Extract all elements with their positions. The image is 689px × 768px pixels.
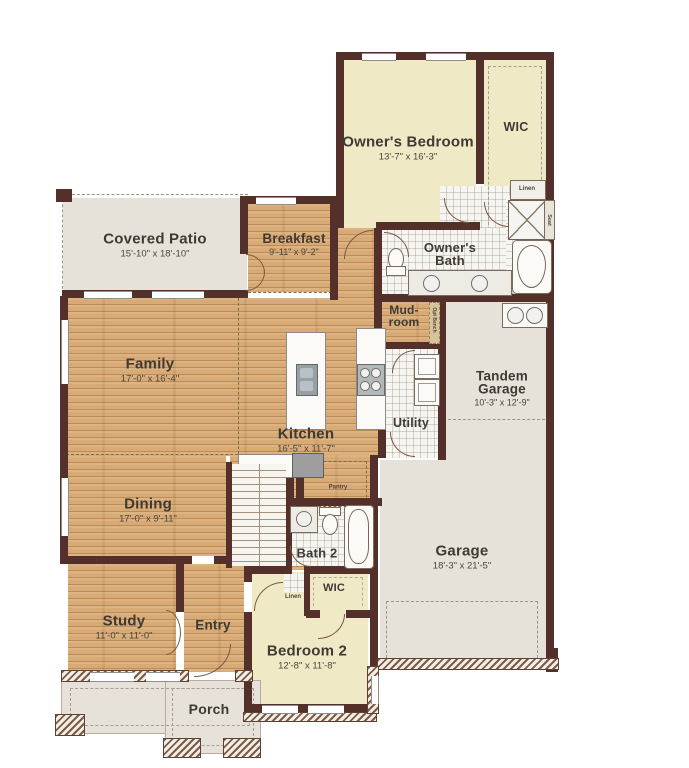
door-arc bbox=[166, 632, 181, 655]
window bbox=[362, 53, 396, 61]
washer bbox=[414, 354, 440, 379]
wall bbox=[62, 556, 192, 564]
room-label-garage: Garage 18'-3" x 21'-5" bbox=[433, 543, 491, 572]
exterior-wall-hatch bbox=[378, 659, 558, 669]
window bbox=[146, 672, 180, 682]
room-label-family: Family 17'-0" x 16'-4" bbox=[121, 356, 179, 385]
window bbox=[90, 672, 134, 682]
vanity-sink bbox=[290, 506, 318, 533]
room-label-bedroom2: Bedroom 2 12'-8" x 11'-8" bbox=[267, 643, 347, 672]
toilet bbox=[322, 514, 338, 535]
door-arc bbox=[166, 610, 181, 633]
wall bbox=[346, 610, 372, 618]
wall bbox=[476, 52, 484, 184]
exterior-wall-hatch bbox=[244, 713, 376, 721]
wall bbox=[330, 196, 338, 300]
room-label-owners-bedroom: Owner's Bedroom 13'-7" x 16'-3" bbox=[342, 134, 474, 163]
room-label-bath2: Bath 2 bbox=[297, 546, 338, 561]
window bbox=[61, 478, 69, 536]
dryer bbox=[414, 379, 440, 406]
tandem-bay-dashed bbox=[448, 419, 545, 420]
wall bbox=[304, 566, 310, 616]
wall bbox=[240, 196, 248, 254]
utility-sink bbox=[502, 303, 548, 328]
patio-edge-dashed bbox=[62, 194, 248, 195]
window bbox=[308, 705, 344, 714]
room-label-linen-owner: Linen bbox=[519, 186, 535, 192]
wall bbox=[176, 562, 184, 612]
bathtub bbox=[512, 240, 552, 294]
room-label-porch: Porch bbox=[189, 701, 230, 717]
room-label-entry: Entry bbox=[195, 618, 231, 633]
ceiling-break-dashed bbox=[248, 292, 332, 293]
ceiling-break-dashed bbox=[238, 298, 239, 454]
exterior-wall-hatch bbox=[236, 671, 252, 681]
window bbox=[152, 291, 204, 299]
cooktop bbox=[357, 364, 385, 396]
vanity-double-sink bbox=[408, 270, 512, 296]
garage-door-dashed bbox=[386, 601, 538, 658]
window bbox=[371, 676, 379, 704]
room-label-pantry: Pantry bbox=[329, 484, 348, 491]
refrigerator bbox=[292, 453, 324, 478]
room-label-utility: Utility bbox=[393, 416, 429, 430]
wall bbox=[546, 302, 554, 654]
patio-edge-dashed bbox=[62, 194, 63, 294]
wall bbox=[374, 228, 382, 302]
room-label-owners-bath: Owner's Bath bbox=[424, 240, 476, 268]
label-opt-bench: Opt Bench bbox=[431, 307, 437, 332]
porch-post bbox=[224, 739, 260, 757]
wall bbox=[244, 612, 252, 714]
room-label-breakfast: Breakfast 9'-11" x 9'-2" bbox=[262, 231, 325, 257]
porch-post bbox=[164, 739, 200, 757]
window bbox=[426, 53, 466, 61]
island-sink bbox=[296, 364, 318, 396]
door-arc bbox=[194, 644, 231, 677]
room-label-tandem-garage: Tandem Garage 10'-3" x 12'-9" bbox=[474, 369, 529, 408]
shower bbox=[508, 200, 546, 240]
wall bbox=[252, 566, 286, 574]
porch-post bbox=[56, 715, 84, 735]
room-label-linen2: Linen bbox=[285, 594, 301, 600]
toilet-tank bbox=[386, 266, 406, 276]
window bbox=[84, 291, 132, 299]
room-label-kitchen: Kitchen 16'-5" x 11'-7" bbox=[277, 426, 335, 455]
room-label-study: Study 11'-0" x 11'-0" bbox=[95, 613, 152, 642]
stairs bbox=[232, 464, 286, 566]
room-label-covered-patio: Covered Patio 15'-10" x 18'-10" bbox=[103, 231, 206, 260]
wall bbox=[56, 189, 72, 202]
window bbox=[61, 320, 69, 384]
room-label-mudroom: Mud- room bbox=[389, 303, 420, 329]
room-label-seat: Seat bbox=[546, 214, 552, 226]
room-label-wic2: WIC bbox=[323, 582, 345, 594]
room-label-wic-owner: WIC bbox=[504, 120, 529, 134]
floor-linen2 bbox=[284, 574, 304, 592]
window bbox=[262, 705, 298, 714]
porch-outline-dashed bbox=[172, 688, 254, 746]
window bbox=[256, 197, 296, 205]
wall bbox=[376, 222, 480, 230]
bathtub bbox=[344, 505, 374, 569]
room-label-dining: Dining 17'-0" x 9'-11" bbox=[119, 496, 177, 525]
floor-plan: Owner's Bedroom 13'-7" x 16'-3" WIC Line… bbox=[0, 0, 689, 768]
